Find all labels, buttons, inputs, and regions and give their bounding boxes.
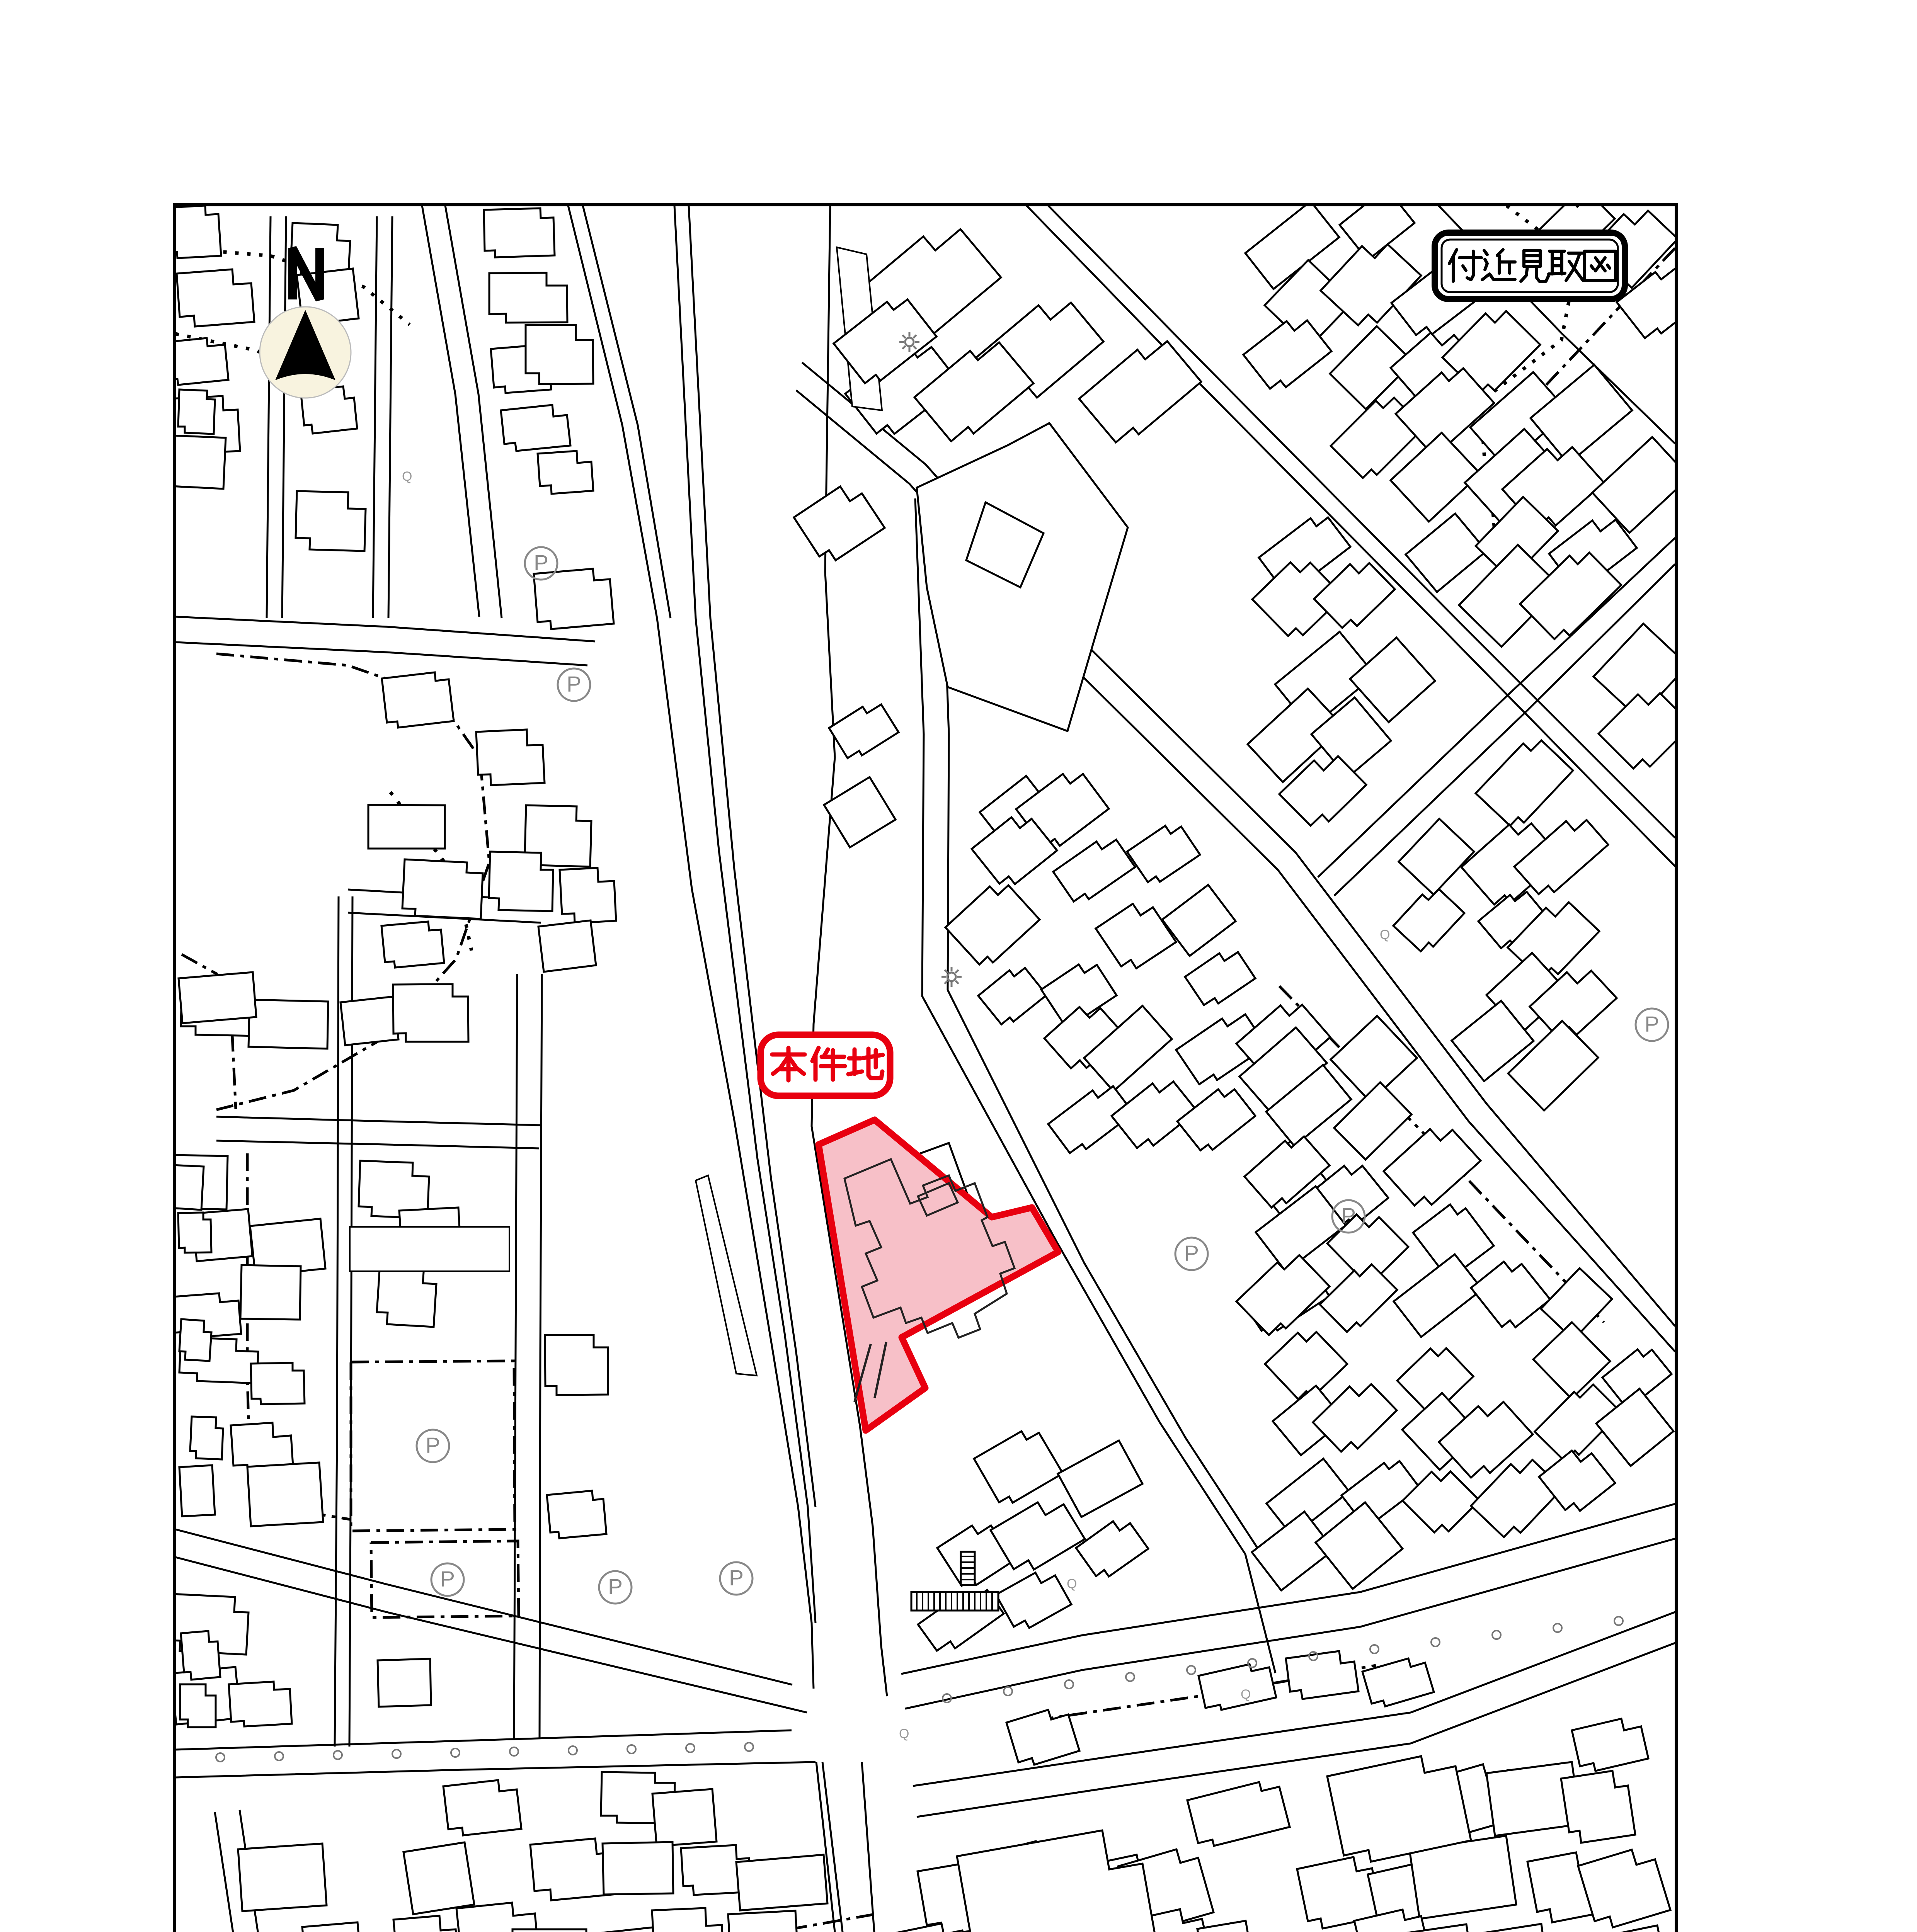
svg-text:P: P <box>608 1575 623 1599</box>
svg-text:Q: Q <box>1241 1687 1251 1702</box>
svg-text:P: P <box>729 1566 744 1590</box>
svg-text:P: P <box>534 551 548 575</box>
svg-text:Q: Q <box>1067 1577 1077 1591</box>
svg-text:P: P <box>567 672 581 697</box>
svg-text:Q: Q <box>1380 927 1390 942</box>
svg-text:P: P <box>1645 1012 1659 1037</box>
svg-text:P: P <box>1184 1241 1199 1266</box>
svg-text:P: P <box>1341 1204 1356 1228</box>
svg-text:Q: Q <box>402 469 412 484</box>
svg-text:P: P <box>426 1433 440 1458</box>
svg-text:Q: Q <box>899 1726 909 1741</box>
svg-text:P: P <box>440 1567 455 1592</box>
